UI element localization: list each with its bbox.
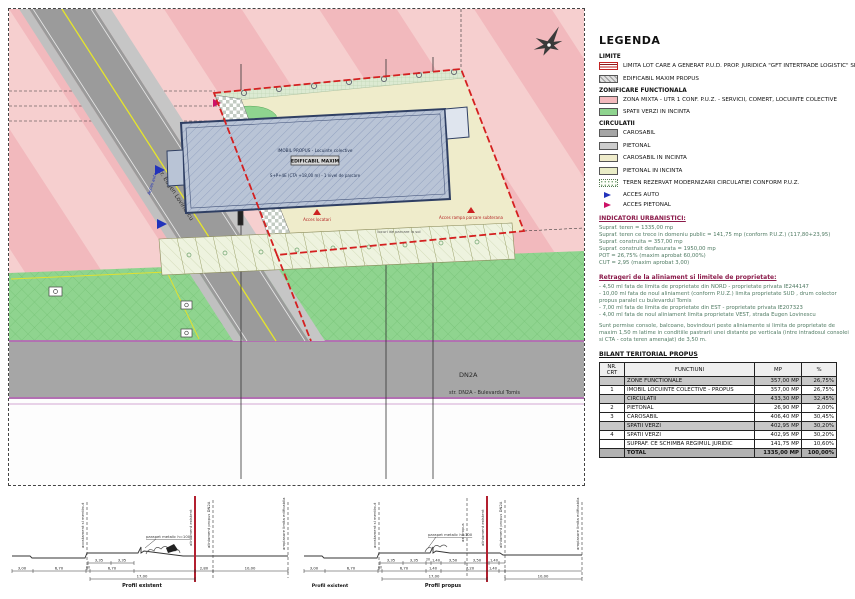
- table-row-total: TOTAL1335,00 MP100,00%: [600, 449, 837, 458]
- retrageri-line: - 4,00 ml fata de noul aliniament limita…: [599, 312, 849, 319]
- dim: 1,40: [489, 567, 498, 571]
- dim: 17,00: [429, 574, 440, 579]
- pietonal-incinta-swatch: [599, 167, 618, 175]
- dim: 6,70: [347, 566, 356, 571]
- acces-pietonal-arrow-icon: [604, 202, 611, 208]
- retrageri-line: - 4,50 ml fata de limita de proprietate …: [599, 284, 849, 291]
- indicators-title: INDICATORI URBANISTICI:: [599, 215, 849, 222]
- profile-propus-name: Profil propus: [425, 583, 461, 589]
- dim: 20: [426, 558, 430, 562]
- label-ax-propus: ax propus: [460, 523, 465, 542]
- legend-heading-circulatii: CIRCULATII: [599, 121, 849, 127]
- dim: 1,40: [429, 567, 438, 571]
- edificabil-swatch: [599, 75, 618, 83]
- limita-lot-swatch: [599, 62, 618, 70]
- table-row: SPATII VERZI402,95 MP30,20%: [600, 422, 837, 431]
- retrageri-line: - 7,00 ml fata de limita de proprietate …: [599, 305, 849, 312]
- indicator-line: Supraf. construita = 357,00 mp: [599, 239, 849, 246]
- dim: 80: [86, 566, 90, 570]
- dim: 1,40: [432, 559, 441, 563]
- dim: 17,00: [137, 574, 148, 579]
- indicator-line: Supraf. teren ce trece in domeniu public…: [599, 232, 849, 239]
- bilant-header-row: NR. CRT FUNCTIUNI MP %: [600, 363, 837, 377]
- indicator-line: CUT = 2,95 (maxim aprobat 3,00): [599, 260, 849, 267]
- legend-heading-limite: LIMITE: [599, 54, 849, 60]
- legend-item: PIETONAL: [599, 142, 849, 150]
- table-row: CIRCULATII433,30 MP32,45%: [600, 395, 837, 404]
- building-entrance: [167, 150, 184, 186]
- dim: 10,00: [538, 574, 549, 579]
- pietonal-swatch: [599, 142, 618, 150]
- indicator-line: Supraf. construit desfasurata = 1950,00 …: [599, 246, 849, 253]
- table-row: 3CAROSABIL406,40 MP30,45%: [600, 413, 837, 422]
- col-pct: %: [802, 363, 837, 377]
- table-row: 4SPATII VERZI402,95 MP30,20%: [600, 431, 837, 440]
- building-line3: S+P+4E (CTA +18,00 m) - 1 nivel de parca…: [270, 173, 361, 178]
- dim: 80: [378, 566, 382, 570]
- dim: 3,35: [387, 558, 396, 563]
- table-row: ZONE FUNCTIONALE357,00 MP26,75%: [600, 377, 837, 386]
- building-annex: [445, 107, 469, 139]
- dim: 3,35: [118, 558, 127, 563]
- proposed-building: IMOBIL PROPUS - Locuinte colective EDIFI…: [167, 107, 469, 213]
- legend-item: LIMITA LOT CARE A GENERAT P.U.D. PROP. J…: [599, 62, 849, 70]
- building-line2: EDIFICABIL MAXIM: [291, 159, 340, 165]
- dim: 6,70: [55, 566, 64, 571]
- dim: 3,50: [473, 558, 482, 563]
- legend-item: TEREN REZERVAT MODERNIZARII CIRCULATIEI …: [599, 179, 849, 187]
- dim: 3,00: [18, 566, 27, 571]
- bilant-title: BILANT TERITORIAL PROPUS: [599, 351, 849, 358]
- legend-item: CAROSABIL: [599, 129, 849, 137]
- dim: 10,00: [245, 566, 256, 571]
- dim: 3,00: [310, 566, 319, 571]
- legend-item: ACCES AUTO: [599, 192, 849, 198]
- console-note: Sunt permise console, balcoane, bovindou…: [599, 323, 849, 344]
- profile-existent-sub-name: Profil existent: [312, 583, 349, 589]
- table-row: 2PIETONAL26,90 MP2,00%: [600, 404, 837, 413]
- bilant-table: NR. CRT FUNCTIUNI MP % ZONE FUNCTIONALE3…: [599, 362, 837, 458]
- legend-panel: LEGENDA LIMITE LIMITA LOT CARE A GENERAT…: [599, 34, 849, 458]
- table-row: 1IMOBIL LOCUINTE COLECTIVE - PROPUS357,0…: [600, 386, 837, 395]
- label-aliniament-propus: aliniament propus DN2A: [206, 501, 211, 548]
- building-line1: IMOBIL PROPUS - Locuinte colective: [278, 148, 353, 153]
- profile-existent: acostament si mentinut parapet metalic h…: [12, 496, 288, 589]
- label-aliniament-existent: aliniament existent: [188, 509, 193, 546]
- indicator-line: POT = 26,75% (maxim aprobat 60,00%): [599, 253, 849, 260]
- label-acostament: acostament si mentinut: [80, 502, 85, 548]
- acces-rampa-label: Acces rampa parcare subterana: [439, 215, 503, 220]
- dn2a-label: DN2A: [459, 371, 478, 379]
- legend-item: PIETONAL IN INCINTA: [599, 167, 849, 175]
- label-parapet: parapet metalic h=100: [428, 532, 473, 537]
- dim: 3,35: [95, 558, 104, 563]
- teren-rezervat-swatch: [599, 179, 618, 187]
- table-row: SUPRAF. CE SCHIMBA REGIMUL JURIDIC141,75…: [600, 440, 837, 449]
- dim: 6,70: [400, 566, 409, 571]
- legend-item: ACCES PIETONAL: [599, 202, 849, 208]
- legend-heading-zonificare: ZONIFICARE FUNCTIONALA: [599, 88, 849, 94]
- legend-item: SPATII VERZI IN INCINTA: [599, 108, 849, 116]
- dn2a-sublabel: str. DN2A - Bulevardul Tomis: [449, 390, 520, 396]
- label-aliniament-propus: aliniament propus DN2A: [498, 501, 503, 548]
- indicator-line: Supraf. teren = 1335,00 mp: [599, 225, 849, 232]
- drawing-sheet: DN2A str. DN2A - Bulevardul Tomis str. E…: [0, 0, 855, 599]
- dim: 6,70: [108, 566, 117, 571]
- acces-locatari-label: Acces locatari: [303, 217, 331, 222]
- profile-propus: acostament si mentinut parapet metalic h…: [304, 496, 582, 589]
- col-functiuni: FUNCTIUNI: [625, 363, 755, 377]
- label-parapet: parapet metalic h=100: [146, 534, 191, 539]
- label-aliniament-existent: aliniament existent: [480, 509, 485, 546]
- dim: 1,40: [490, 559, 499, 563]
- legend-item: CAROSABIL IN INCINTA: [599, 154, 849, 162]
- label-limita-edificabila: amplasare limita edificabila: [575, 498, 580, 550]
- carosabil-swatch: [599, 129, 618, 137]
- parcare-note: locuri de parcare la sol: [377, 229, 420, 234]
- carosabil-incinta-swatch: [599, 154, 618, 162]
- zona-mixta-swatch: [599, 96, 618, 104]
- retrageri-line: - 10,00 ml fata de noul aliniament (conf…: [599, 291, 849, 305]
- legend-title: LEGENDA: [599, 34, 849, 47]
- col-nr-crt: NR. CRT: [600, 363, 625, 377]
- label-limita-edificabila: amplasare limita edificabila: [281, 498, 286, 550]
- retrageri-title: Retrageri de la aliniament si limitele d…: [599, 274, 849, 281]
- acces-auto-arrow-icon: [604, 192, 611, 198]
- site-plan: DN2A str. DN2A - Bulevardul Tomis str. E…: [8, 8, 585, 486]
- dim: 7,20: [466, 566, 475, 571]
- dn2a-road: DN2A str. DN2A - Bulevardul Tomis: [9, 341, 584, 485]
- road-profiles: acostament si mentinut parapet metalic h…: [8, 490, 588, 595]
- spatii-verzi-swatch: [599, 108, 618, 116]
- dim: 3,35: [410, 558, 419, 563]
- legend-item: ZONA MIXTA - UTR 1 CONF. P.U.Z. - SERVIC…: [599, 96, 849, 104]
- dim: 2,80: [200, 566, 209, 571]
- profile-existent-name: Profil existent: [122, 583, 162, 589]
- col-mp: MP: [755, 363, 802, 377]
- dim: 3,50: [449, 558, 458, 563]
- label-acostament: acostament si mentinut: [372, 502, 377, 548]
- legend-item: EDIFICABIL MAXIM PROPUS: [599, 75, 849, 83]
